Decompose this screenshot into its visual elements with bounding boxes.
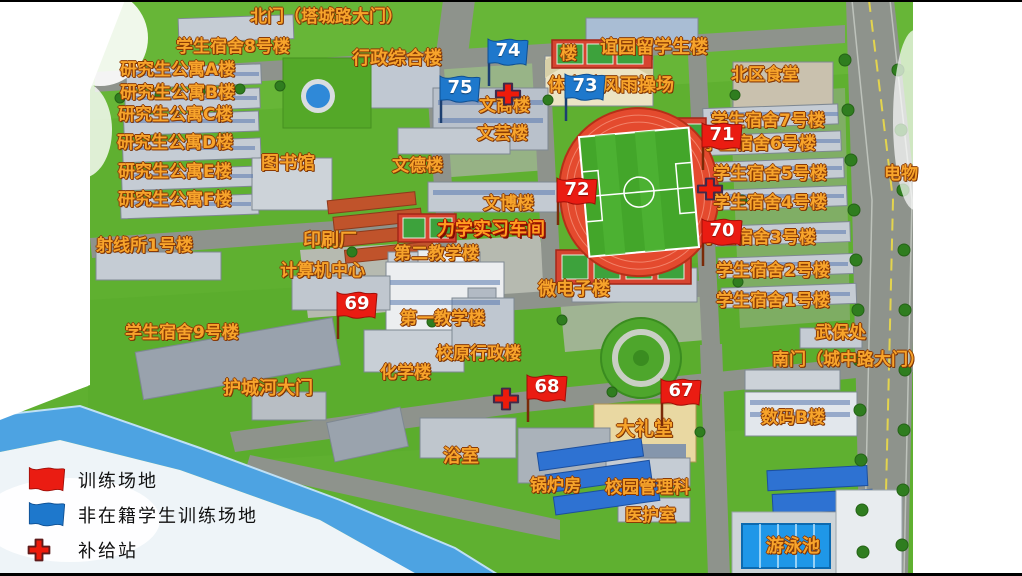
slide-border-top — [0, 0, 1022, 2]
fountain — [283, 58, 371, 128]
legend: 训练场地 非在籍学生训练场地 补给站 — [26, 466, 286, 571]
blue-flag-icon — [26, 500, 78, 530]
legend-label: 训练场地 — [78, 467, 158, 493]
red-flag-icon — [26, 465, 78, 495]
garden-circle — [601, 318, 681, 398]
legend-row-training-ground: 训练场地 — [26, 466, 286, 494]
legend-label: 非在籍学生训练场地 — [78, 502, 258, 528]
legend-row-supply-station: 补给站 — [26, 536, 286, 564]
legend-label: 补给站 — [78, 537, 138, 563]
legend-row-nonenrolled-training-ground: 非在籍学生训练场地 — [26, 501, 286, 529]
campus-map: 北门（塔城路大门）学生宿舍8号楼研究生公寓A楼研究生公寓B楼研究生公寓C楼研究生… — [0, 0, 1022, 576]
red-cross-icon — [26, 537, 78, 563]
